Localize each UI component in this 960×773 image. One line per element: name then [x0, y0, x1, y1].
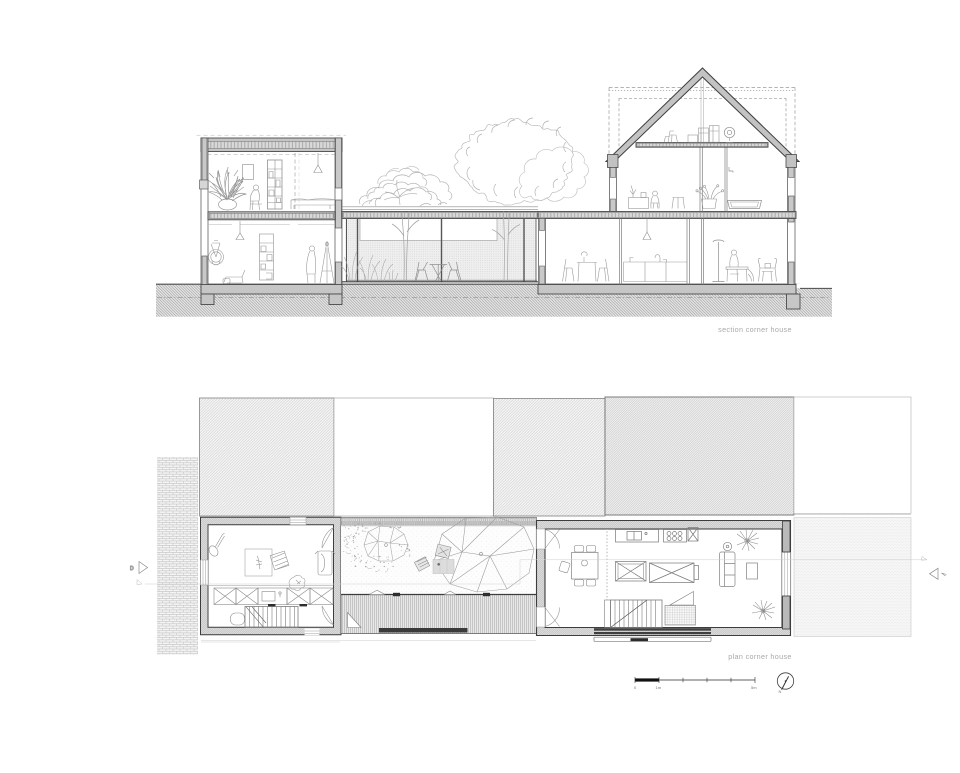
svg-text:plan corner house: plan corner house [728, 652, 792, 661]
svg-text:1m: 1m [656, 685, 662, 690]
svg-text:N: N [779, 689, 782, 694]
svg-text:D: D [130, 566, 134, 572]
svg-text:section corner house: section corner house [718, 325, 792, 334]
svg-text:5m: 5m [751, 685, 757, 690]
